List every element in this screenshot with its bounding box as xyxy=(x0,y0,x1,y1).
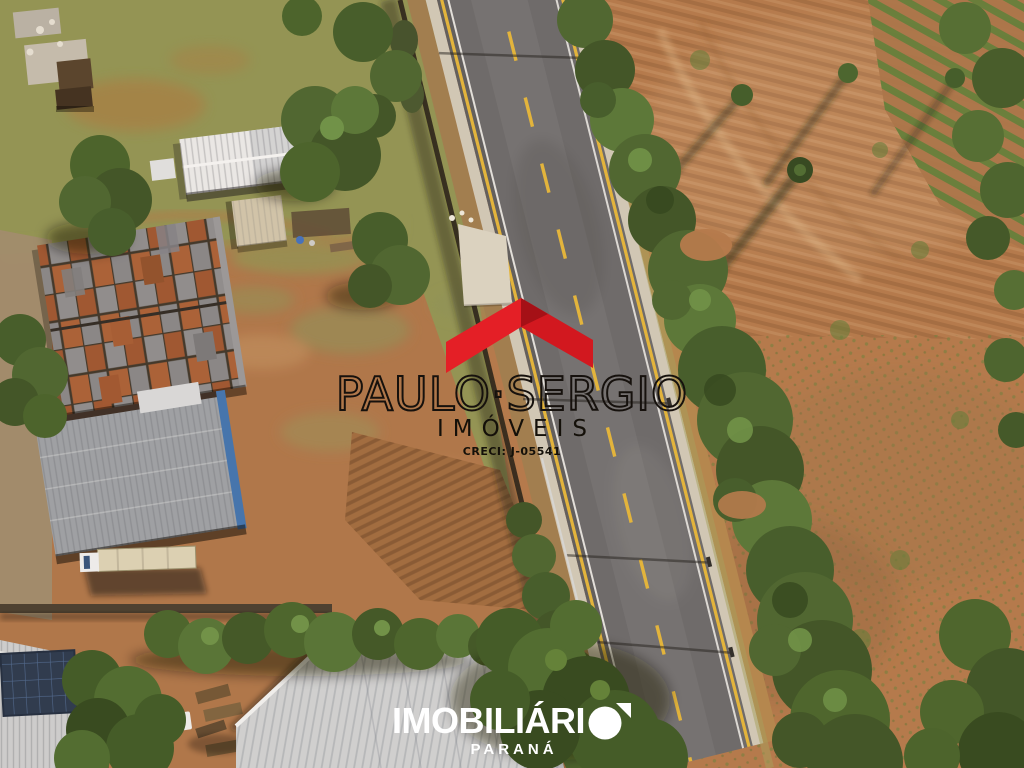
aerial-scene xyxy=(0,0,1024,768)
aerial-photo: PAULO·SERGIO IMÓVEIS CRECI: J-05541 IMOB… xyxy=(0,0,1024,768)
photo-tint xyxy=(0,0,1024,768)
